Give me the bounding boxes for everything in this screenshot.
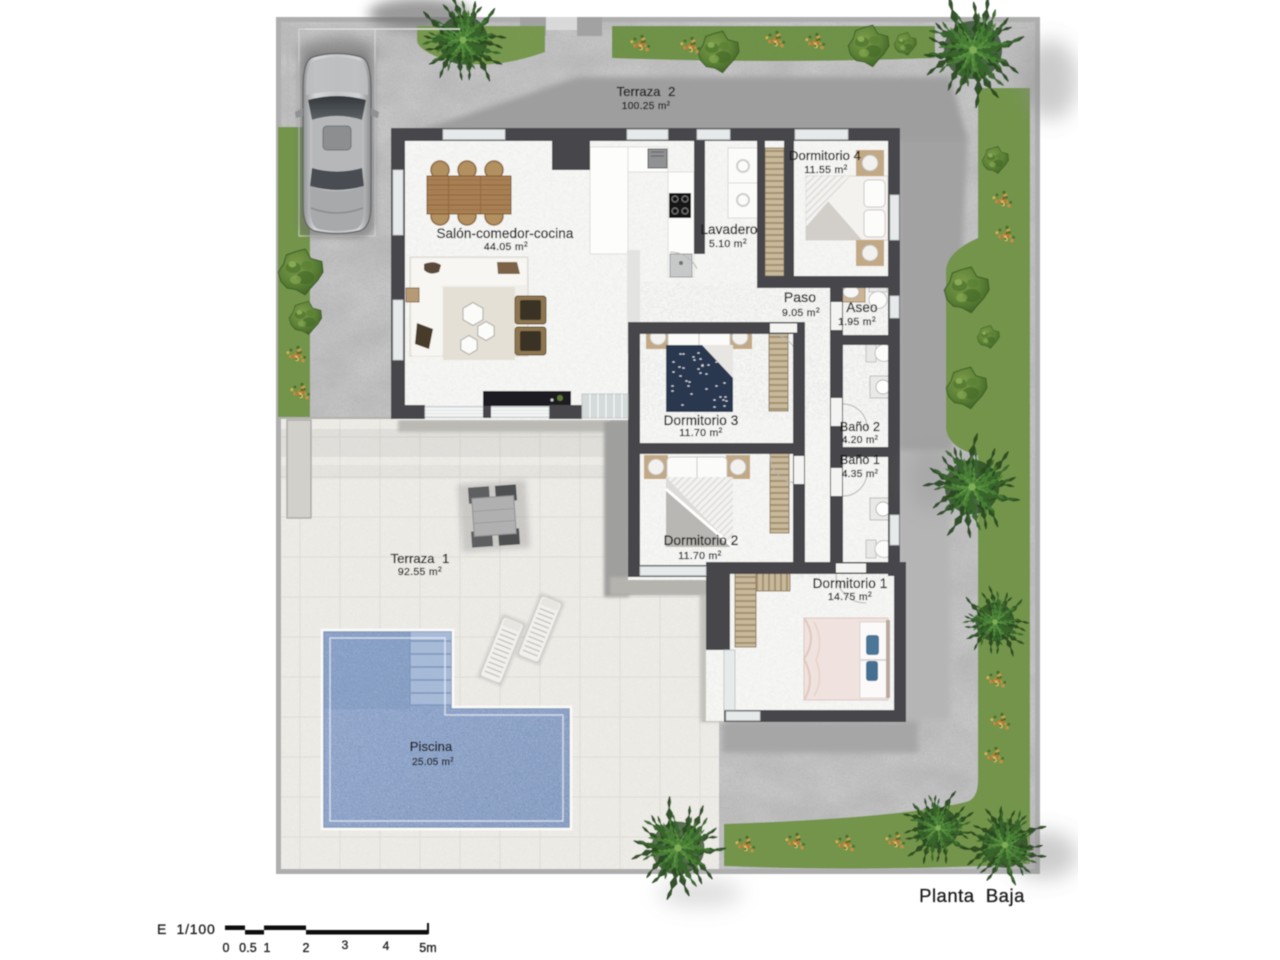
svg-text:Dormitorio 4: Dormitorio 4 (789, 148, 861, 163)
svg-text:Lavadero: Lavadero (700, 222, 757, 237)
svg-text:Aseo: Aseo (846, 300, 877, 315)
svg-text:92.55 m2: 92.55 m2 (398, 566, 442, 578)
svg-text:5.10 m2: 5.10 m2 (709, 238, 747, 250)
svg-text:0.5: 0.5 (239, 941, 257, 955)
svg-text:Dormitorio 1: Dormitorio 1 (813, 576, 888, 591)
svg-text:100.25 m2: 100.25 m2 (622, 101, 671, 112)
svg-text:Baño 2: Baño 2 (840, 420, 880, 434)
svg-text:9.05 m2: 9.05 m2 (782, 307, 820, 319)
svg-text:11.70 m2: 11.70 m2 (679, 427, 722, 439)
svg-text:14.75 m2: 14.75 m2 (828, 591, 872, 603)
svg-text:2: 2 (302, 941, 309, 955)
svg-text:11.70 m2: 11.70 m2 (678, 550, 721, 562)
svg-text:Dormitorio 3: Dormitorio 3 (664, 413, 739, 428)
svg-text:Terraza 2: Terraza 2 (617, 84, 676, 99)
svg-text:Terraza 1: Terraza 1 (391, 551, 450, 566)
svg-text:1.95 m2: 1.95 m2 (838, 316, 876, 328)
svg-text:1: 1 (263, 941, 270, 955)
svg-text:Salón-comedor-cocina: Salón-comedor-cocina (436, 226, 573, 241)
svg-text:E 1/100: E 1/100 (157, 921, 216, 937)
svg-text:44.05 m2: 44.05 m2 (484, 241, 528, 253)
svg-text:Piscina: Piscina (410, 739, 453, 754)
svg-text:4.35 m2: 4.35 m2 (842, 469, 879, 480)
svg-text:Baño 1: Baño 1 (840, 453, 880, 467)
svg-text:11.55 m2: 11.55 m2 (804, 164, 847, 176)
svg-text:Planta Baja: Planta Baja (919, 885, 1025, 906)
svg-text:3: 3 (342, 938, 349, 952)
svg-text:5m: 5m (419, 941, 437, 955)
svg-text:4.20 m2: 4.20 m2 (842, 435, 879, 446)
svg-text:Paso: Paso (784, 289, 816, 305)
svg-text:0: 0 (222, 941, 229, 955)
svg-text:4: 4 (383, 939, 390, 953)
svg-text:Dormitorio 2: Dormitorio 2 (664, 533, 739, 548)
svg-text:25.05 m2: 25.05 m2 (412, 757, 454, 768)
